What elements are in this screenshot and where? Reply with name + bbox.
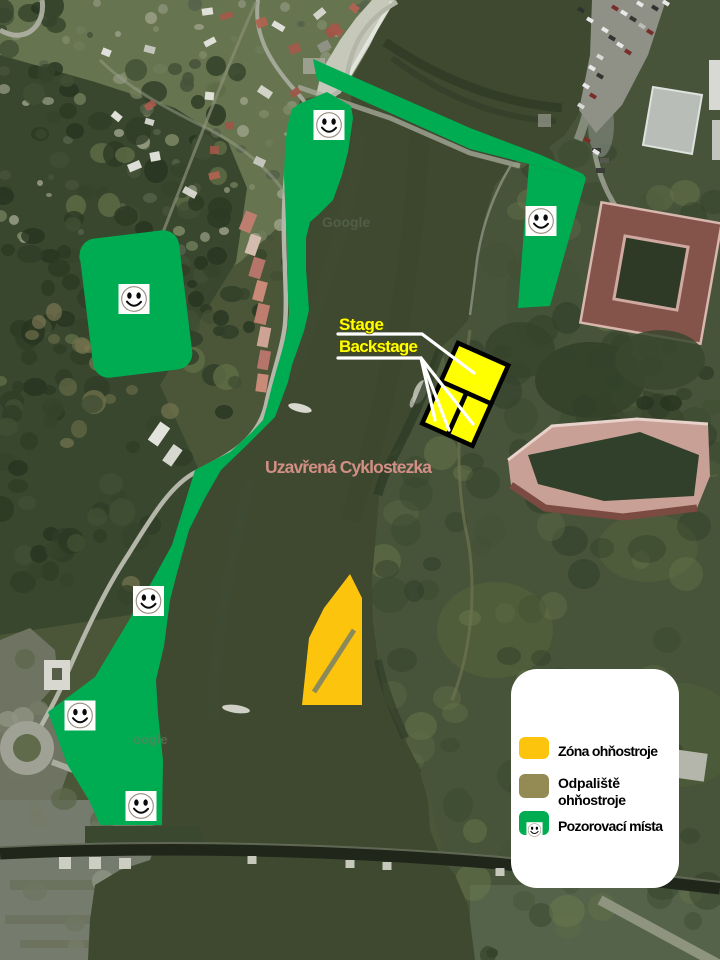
svg-text:Stage: Stage <box>339 315 384 334</box>
svg-text:ohňostroje: ohňostroje <box>558 792 626 808</box>
svg-text:Pozorovací místa: Pozorovací místa <box>558 818 663 834</box>
svg-text:Backstage: Backstage <box>339 337 418 356</box>
svg-text:oogle: oogle <box>133 732 168 747</box>
svg-text:Zóna ohňostroje: Zóna ohňostroje <box>558 743 658 759</box>
svg-text:Uzavřená Cyklostezka: Uzavřená Cyklostezka <box>265 457 432 477</box>
svg-text:Odpaliště: Odpaliště <box>558 775 620 791</box>
svg-text:Google: Google <box>322 214 370 230</box>
